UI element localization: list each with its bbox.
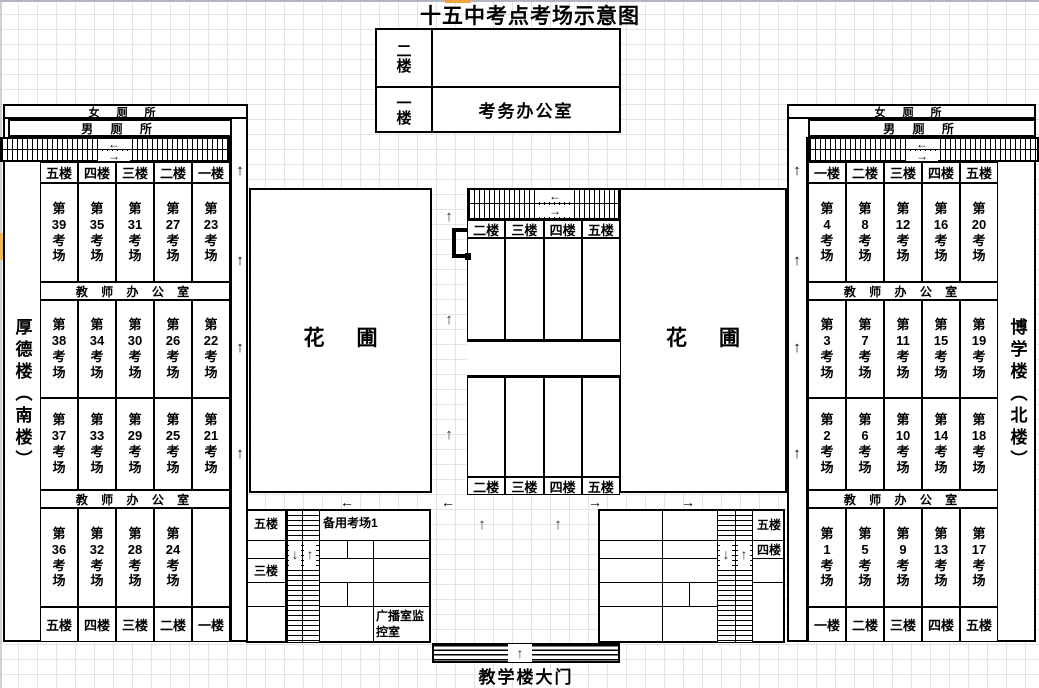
exam-room: 第8考场 bbox=[846, 183, 884, 282]
room-number: 31 bbox=[128, 217, 142, 233]
floor-label: 二楼 bbox=[154, 607, 192, 642]
line bbox=[753, 558, 785, 559]
room-number: 13 bbox=[934, 542, 948, 558]
floor-label: 五楼 bbox=[582, 477, 620, 495]
up-arrow-icon: ↑ bbox=[789, 337, 805, 357]
room-number: 27 bbox=[166, 217, 180, 233]
exam-room: 第29考场 bbox=[116, 398, 154, 490]
left-room-row-1: 第39考场 第35考场 第31考场 第27考场 第23考场 bbox=[40, 183, 230, 282]
exam-room: 第36考场 bbox=[40, 508, 78, 607]
room-cell bbox=[467, 377, 505, 477]
exam-room: 第23考场 bbox=[192, 183, 230, 282]
line bbox=[320, 540, 431, 541]
room-number: 8 bbox=[861, 217, 868, 233]
up-arrow-icon: ↑ bbox=[232, 443, 248, 463]
floor-label: 四楼 bbox=[544, 220, 582, 238]
exam-site-map: 十五中考点考场示意图 二楼 一楼 考务办公室 女 厕 所 男 厕 所 ← → ↑… bbox=[0, 0, 1039, 688]
teacher-office: 教 师 办 公 室 bbox=[40, 282, 230, 300]
exam-room: 第33考场 bbox=[78, 398, 116, 490]
teacher-office: 教 师 办 公 室 bbox=[808, 282, 998, 300]
up-arrow-icon: ↑ bbox=[232, 337, 248, 357]
up-arrow-icon: ↑ bbox=[550, 512, 566, 536]
exam-room: 第13考场 bbox=[922, 508, 960, 607]
line bbox=[246, 606, 287, 607]
exam-room: 第11考场 bbox=[884, 300, 922, 398]
door-handle-dot bbox=[465, 253, 471, 260]
room-number: 18 bbox=[972, 428, 986, 444]
main-gate-label: 教学楼大门 bbox=[432, 663, 620, 688]
line bbox=[320, 558, 431, 559]
floor5-label: 五楼 bbox=[248, 513, 284, 533]
room-number: 32 bbox=[90, 542, 104, 558]
exam-room: 第16考场 bbox=[922, 183, 960, 282]
garden-label: 花圃 bbox=[251, 322, 430, 352]
exam-room-empty bbox=[192, 508, 230, 607]
room-number: 3 bbox=[823, 333, 830, 349]
central-floors-top: 二楼 三楼 四楼 五楼 bbox=[467, 220, 620, 238]
line bbox=[347, 582, 348, 606]
floor-label: 五楼 bbox=[40, 162, 78, 183]
room-number: 14 bbox=[934, 428, 948, 444]
floor-label: 三楼 bbox=[505, 477, 543, 495]
floor-label: 三楼 bbox=[116, 162, 154, 183]
room-number: 9 bbox=[899, 542, 906, 558]
room-number: 4 bbox=[823, 217, 830, 233]
room-number: 6 bbox=[861, 428, 868, 444]
exam-room: 第34考场 bbox=[78, 300, 116, 398]
room-number: 35 bbox=[90, 217, 104, 233]
room-number: 25 bbox=[166, 428, 180, 444]
exam-room: 第31考场 bbox=[116, 183, 154, 282]
line bbox=[662, 509, 663, 643]
room-number: 30 bbox=[128, 333, 142, 349]
room-number: 10 bbox=[896, 428, 910, 444]
right-room-row-2: 第3考场 第7考场 第11考场 第15考场 第19考场 bbox=[808, 300, 998, 398]
floor-label: 二楼 bbox=[467, 477, 505, 495]
up-arrow-icon: ↑ bbox=[232, 160, 248, 180]
line bbox=[600, 606, 717, 607]
exam-room: 第4考场 bbox=[808, 183, 846, 282]
exam-room: 第22考场 bbox=[192, 300, 230, 398]
right-arrow-icon: → bbox=[578, 495, 612, 509]
up-arrow-icon: ↑ bbox=[508, 644, 532, 662]
exam-room: 第26考场 bbox=[154, 300, 192, 398]
floor-label: 四楼 bbox=[922, 162, 960, 183]
teacher-office: 教 师 办 公 室 bbox=[808, 490, 998, 508]
floor-label: 四楼 bbox=[78, 607, 116, 642]
left-building-name: 厚德楼（南楼） bbox=[6, 305, 38, 485]
up-arrow-icon: ↑ bbox=[474, 512, 490, 536]
office-floor1-label: 一楼 bbox=[375, 89, 431, 131]
exam-room: 第10考场 bbox=[884, 398, 922, 490]
line bbox=[320, 582, 431, 583]
floor-label: 三楼 bbox=[505, 220, 543, 238]
line bbox=[246, 558, 287, 559]
floor-label: 一楼 bbox=[192, 162, 230, 183]
backup-room-label: 备用考场1 bbox=[323, 514, 429, 531]
exam-room: 第21考场 bbox=[192, 398, 230, 490]
central-lower-rooms bbox=[467, 377, 620, 477]
exam-room: 第1考场 bbox=[808, 508, 846, 607]
line bbox=[600, 540, 717, 541]
floor-label: 二楼 bbox=[846, 162, 884, 183]
exam-room: 第19考场 bbox=[960, 300, 998, 398]
room-number: 33 bbox=[90, 428, 104, 444]
exam-room: 第12考场 bbox=[884, 183, 922, 282]
room-number: 11 bbox=[896, 333, 910, 349]
up-arrow-icon: ↑ bbox=[441, 308, 457, 330]
floor4-label: 四楼 bbox=[754, 541, 784, 557]
line bbox=[302, 509, 303, 643]
line bbox=[373, 540, 374, 643]
left-room-row-4: 第36考场 第32考场 第28考场 第24考场 bbox=[40, 508, 230, 607]
left-arrow-icon: ← bbox=[538, 190, 572, 202]
room-number: 39 bbox=[52, 217, 66, 233]
central-upper-rooms bbox=[467, 238, 620, 340]
garden-label: 花圃 bbox=[621, 322, 785, 352]
room-number: 26 bbox=[166, 333, 180, 349]
room-cell bbox=[505, 377, 543, 477]
right-room-row-4: 第1考场 第5考场 第9考场 第13考场 第17考场 bbox=[808, 508, 998, 607]
right-garden: 花圃 bbox=[619, 188, 787, 493]
floor-label: 五楼 bbox=[960, 607, 998, 642]
exam-room: 第7考场 bbox=[846, 300, 884, 398]
left-floors-bottom: 五楼 四楼 三楼 二楼 一楼 bbox=[40, 607, 230, 642]
exam-room: 第32考场 bbox=[78, 508, 116, 607]
room-number: 15 bbox=[934, 333, 948, 349]
exam-room: 第37考场 bbox=[40, 398, 78, 490]
floor-label: 三楼 bbox=[116, 607, 154, 642]
line bbox=[347, 540, 348, 558]
room-number: 34 bbox=[90, 333, 104, 349]
exam-room: 第15考场 bbox=[922, 300, 960, 398]
line bbox=[753, 582, 785, 583]
right-floors-top: 一楼 二楼 三楼 四楼 五楼 bbox=[808, 162, 998, 183]
exam-room: 第6考场 bbox=[846, 398, 884, 490]
room-number: 7 bbox=[861, 333, 868, 349]
room-number: 1 bbox=[823, 542, 830, 558]
exam-room: 第14考场 bbox=[922, 398, 960, 490]
left-edge bbox=[0, 2, 2, 688]
floor-label: 五楼 bbox=[40, 607, 78, 642]
floor-label: 四楼 bbox=[922, 607, 960, 642]
exam-room: 第35考场 bbox=[78, 183, 116, 282]
right-men-toilet: 男 厕 所 bbox=[808, 119, 1036, 137]
right-room-row-1: 第4考场 第8考场 第12考场 第16考场 第20考场 bbox=[808, 183, 998, 282]
central-stairs-mid bbox=[467, 203, 620, 204]
room-number: 21 bbox=[204, 428, 218, 444]
exam-room: 第20考场 bbox=[960, 183, 998, 282]
teacher-office: 教 师 办 公 室 bbox=[40, 490, 230, 508]
floor-label: 四楼 bbox=[544, 477, 582, 495]
left-arrow-icon: ← bbox=[431, 495, 465, 509]
room-number: 23 bbox=[204, 217, 218, 233]
left-women-toilet: 女 厕 所 bbox=[3, 104, 248, 119]
room-number: 20 bbox=[972, 217, 986, 233]
right-floors-bottom: 一楼 二楼 三楼 四楼 五楼 bbox=[808, 607, 998, 642]
room-number: 29 bbox=[128, 428, 142, 444]
floor-label: 三楼 bbox=[884, 162, 922, 183]
exam-room: 第9考场 bbox=[884, 508, 922, 607]
floor5-label: 五楼 bbox=[754, 514, 784, 534]
left-garden: 花圃 bbox=[249, 188, 432, 493]
page-title: 十五中考点考场示意图 bbox=[290, 1, 770, 28]
line bbox=[600, 582, 717, 583]
floor-label: 三楼 bbox=[884, 607, 922, 642]
room-cell bbox=[505, 238, 543, 340]
floor-label: 二楼 bbox=[467, 220, 505, 238]
room-number: 36 bbox=[52, 542, 66, 558]
line bbox=[735, 509, 736, 643]
up-arrow-icon: ↑ bbox=[789, 160, 805, 180]
exam-affairs-office-label: 考务办公室 bbox=[433, 88, 619, 131]
left-floors-top: 五楼 四楼 三楼 二楼 一楼 bbox=[40, 162, 230, 183]
exam-room: 第18考场 bbox=[960, 398, 998, 490]
left-arrow-icon: ← bbox=[906, 139, 938, 149]
exam-room: 第2考场 bbox=[808, 398, 846, 490]
central-middle-band bbox=[467, 340, 620, 377]
room-cell bbox=[582, 238, 620, 340]
room-number: 12 bbox=[896, 217, 910, 233]
left-men-toilet: 男 厕 所 bbox=[8, 119, 232, 137]
line bbox=[246, 582, 287, 583]
right-arrow-icon: → bbox=[538, 205, 572, 217]
room-cell bbox=[582, 377, 620, 477]
floor-label: 二楼 bbox=[154, 162, 192, 183]
left-room-row-3: 第37考场 第33考场 第29考场 第25考场 第21考场 bbox=[40, 398, 230, 490]
up-arrow-icon: ↑ bbox=[441, 205, 457, 227]
exam-room: 第17考场 bbox=[960, 508, 998, 607]
floor-label: 五楼 bbox=[582, 220, 620, 238]
down-arrow-icon: ↓ bbox=[289, 542, 301, 566]
room-number: 19 bbox=[972, 333, 986, 349]
exam-room: 第25考场 bbox=[154, 398, 192, 490]
floor-label: 二楼 bbox=[846, 607, 884, 642]
up-arrow-icon: ↑ bbox=[441, 423, 457, 445]
bottom-left-stairs bbox=[287, 509, 320, 643]
line bbox=[689, 582, 690, 606]
room-number: 37 bbox=[52, 428, 66, 444]
line bbox=[600, 558, 717, 559]
office-floor2-label: 二楼 bbox=[375, 31, 431, 84]
line bbox=[320, 606, 431, 607]
room-number: 2 bbox=[823, 428, 830, 444]
broadcast-room-label: 广播室监控室 bbox=[376, 609, 430, 640]
line bbox=[246, 540, 287, 541]
room-number: 16 bbox=[934, 217, 948, 233]
exam-room: 第24考场 bbox=[154, 508, 192, 607]
left-room-row-2: 第38考场 第34考场 第30考场 第26考场 第22考场 bbox=[40, 300, 230, 398]
room-number: 38 bbox=[52, 333, 66, 349]
right-arrow-icon: → bbox=[906, 151, 938, 161]
up-arrow-icon: ↑ bbox=[738, 542, 750, 566]
floor-label: 四楼 bbox=[78, 162, 116, 183]
right-arrow-icon: → bbox=[671, 495, 705, 509]
exam-room: 第28考场 bbox=[116, 508, 154, 607]
floor-label: 一楼 bbox=[808, 162, 846, 183]
right-room-row-3: 第2考场 第6考场 第10考场 第14考场 第18考场 bbox=[808, 398, 998, 490]
exam-room: 第30考场 bbox=[116, 300, 154, 398]
room-cell bbox=[544, 377, 582, 477]
right-building-name: 博学楼（北楼） bbox=[1000, 305, 1034, 485]
exam-room: 第3考场 bbox=[808, 300, 846, 398]
exam-room: 第39考场 bbox=[40, 183, 78, 282]
exam-room: 第5考场 bbox=[846, 508, 884, 607]
left-arrow-icon: ← bbox=[98, 139, 130, 149]
down-arrow-icon: ↓ bbox=[720, 542, 732, 566]
room-cell bbox=[467, 238, 505, 340]
floor-label: 一楼 bbox=[808, 607, 846, 642]
up-arrow-icon: ↑ bbox=[789, 250, 805, 270]
central-floors-bottom: 二楼 三楼 四楼 五楼 bbox=[467, 477, 620, 495]
left-arrow-icon: ← bbox=[330, 495, 364, 509]
right-arrow-icon: → bbox=[98, 151, 130, 161]
room-cell bbox=[544, 238, 582, 340]
room-number: 5 bbox=[861, 542, 868, 558]
floor3-label: 三楼 bbox=[248, 561, 284, 579]
room-number: 28 bbox=[128, 542, 142, 558]
up-arrow-icon: ↑ bbox=[304, 542, 316, 566]
floor-label: 五楼 bbox=[960, 162, 998, 183]
floor-label: 一楼 bbox=[192, 607, 230, 642]
room-number: 24 bbox=[166, 542, 180, 558]
up-arrow-icon: ↑ bbox=[232, 250, 248, 270]
room-number: 17 bbox=[972, 542, 986, 558]
right-women-toilet: 女 厕 所 bbox=[787, 104, 1036, 119]
exam-room: 第27考场 bbox=[154, 183, 192, 282]
left-corridor-line bbox=[230, 137, 232, 642]
up-arrow-icon: ↑ bbox=[789, 443, 805, 463]
room-number: 22 bbox=[204, 333, 218, 349]
exam-room: 第38考场 bbox=[40, 300, 78, 398]
